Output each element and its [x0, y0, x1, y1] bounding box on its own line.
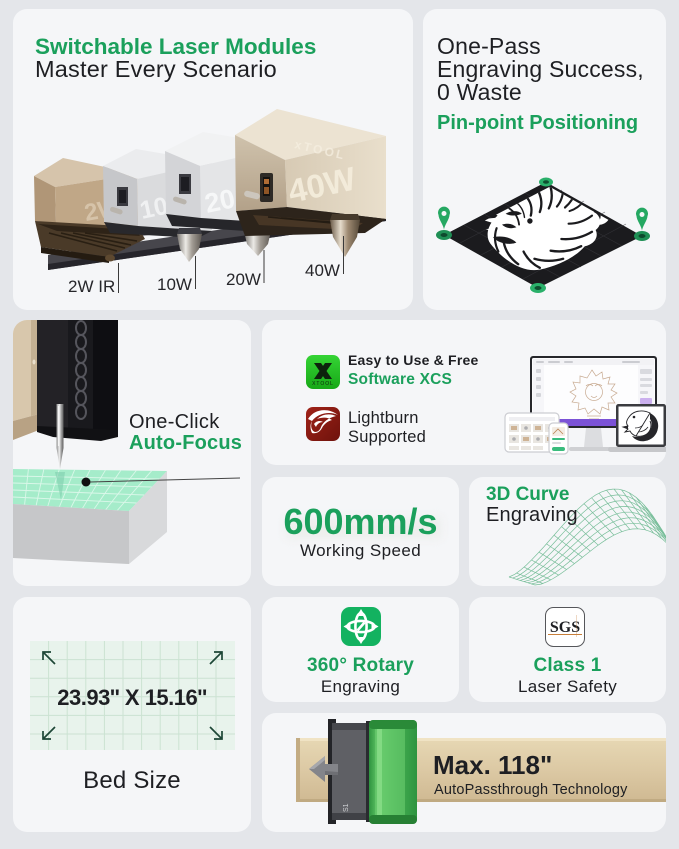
svg-text:SGS: SGS	[550, 619, 580, 636]
svg-text:10: 10	[137, 192, 170, 225]
svg-text:S1: S1	[343, 803, 350, 812]
svg-text:2W IR: 2W IR	[68, 277, 115, 296]
svg-text:XTOOL: XTOOL	[312, 381, 334, 387]
svg-text:20: 20	[202, 183, 238, 219]
svg-text:40W: 40W	[305, 261, 340, 280]
svg-text:10W: 10W	[157, 275, 192, 294]
svg-text:20W: 20W	[226, 270, 261, 289]
